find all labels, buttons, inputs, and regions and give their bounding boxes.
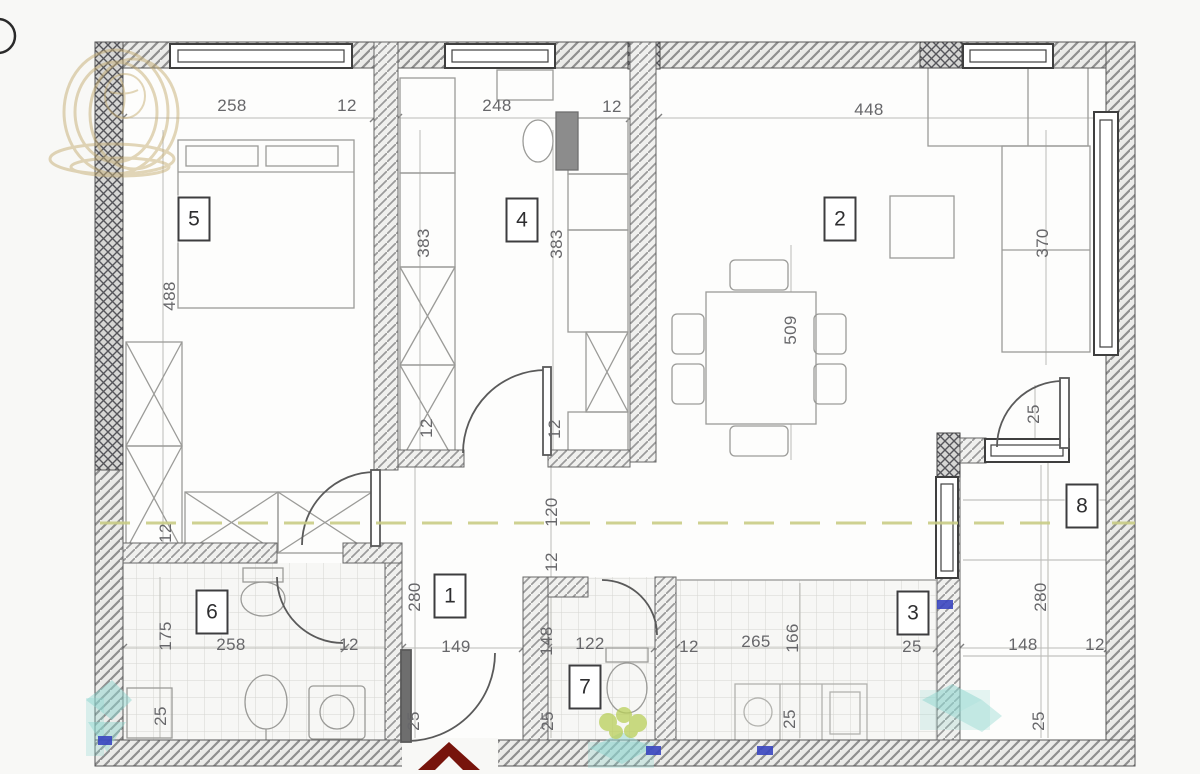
- window-icon: [963, 44, 1053, 68]
- chair-icon: [523, 120, 553, 162]
- window-icon: [1094, 112, 1118, 355]
- window-icon: [445, 44, 555, 68]
- floor-plan-drawing: [0, 0, 1200, 774]
- bed-icon: [178, 140, 354, 308]
- edge-circle-mark: [0, 19, 15, 53]
- window-icon: [170, 44, 352, 68]
- kitchen-floor-tiles: [676, 580, 937, 740]
- window-icon: [936, 477, 958, 578]
- floor-plan: 2581224812448488383383370509121225120121…: [0, 0, 1200, 774]
- bathroom-floor-tiles: [123, 563, 385, 740]
